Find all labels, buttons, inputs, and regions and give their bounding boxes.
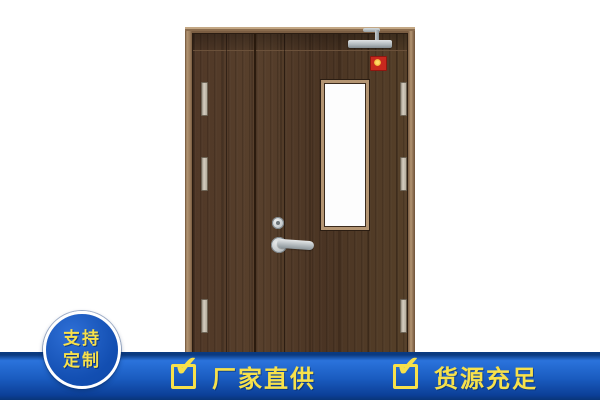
product-listing-image: ✔ 厂家直供 ✔ 货源充足 支持 定制	[0, 0, 600, 400]
checkbox-checked-icon: ✔	[171, 364, 196, 389]
leaf-meeting-gap	[254, 34, 256, 353]
fire-safety-label-icon	[370, 56, 387, 71]
feature-label: 货源充足	[434, 359, 538, 394]
door-closer-icon	[348, 40, 392, 48]
door-frame	[185, 27, 415, 352]
lock-cylinder-icon	[272, 217, 284, 229]
check-icon: ✔	[396, 353, 420, 382]
wood-seam	[284, 34, 285, 353]
hinge-icon	[400, 157, 407, 191]
hinge-icon	[400, 299, 407, 333]
door-leaves	[192, 33, 408, 353]
hinge-icon	[201, 299, 208, 333]
hinge-icon	[400, 82, 407, 116]
feature-label: 厂家直供	[212, 359, 316, 394]
feature-factory-direct: ✔ 厂家直供	[171, 352, 316, 400]
check-icon: ✔	[174, 353, 198, 382]
badge-line: 定制	[63, 350, 101, 372]
feature-ample-supply: ✔ 货源充足	[393, 352, 538, 400]
wood-seam	[226, 34, 227, 353]
hinge-icon	[201, 82, 208, 116]
checkbox-checked-icon: ✔	[393, 364, 418, 389]
hinge-icon	[201, 157, 208, 191]
vision-glass-panel	[321, 80, 369, 230]
customization-badge: 支持 定制	[43, 311, 121, 389]
badge-line: 支持	[63, 328, 101, 350]
